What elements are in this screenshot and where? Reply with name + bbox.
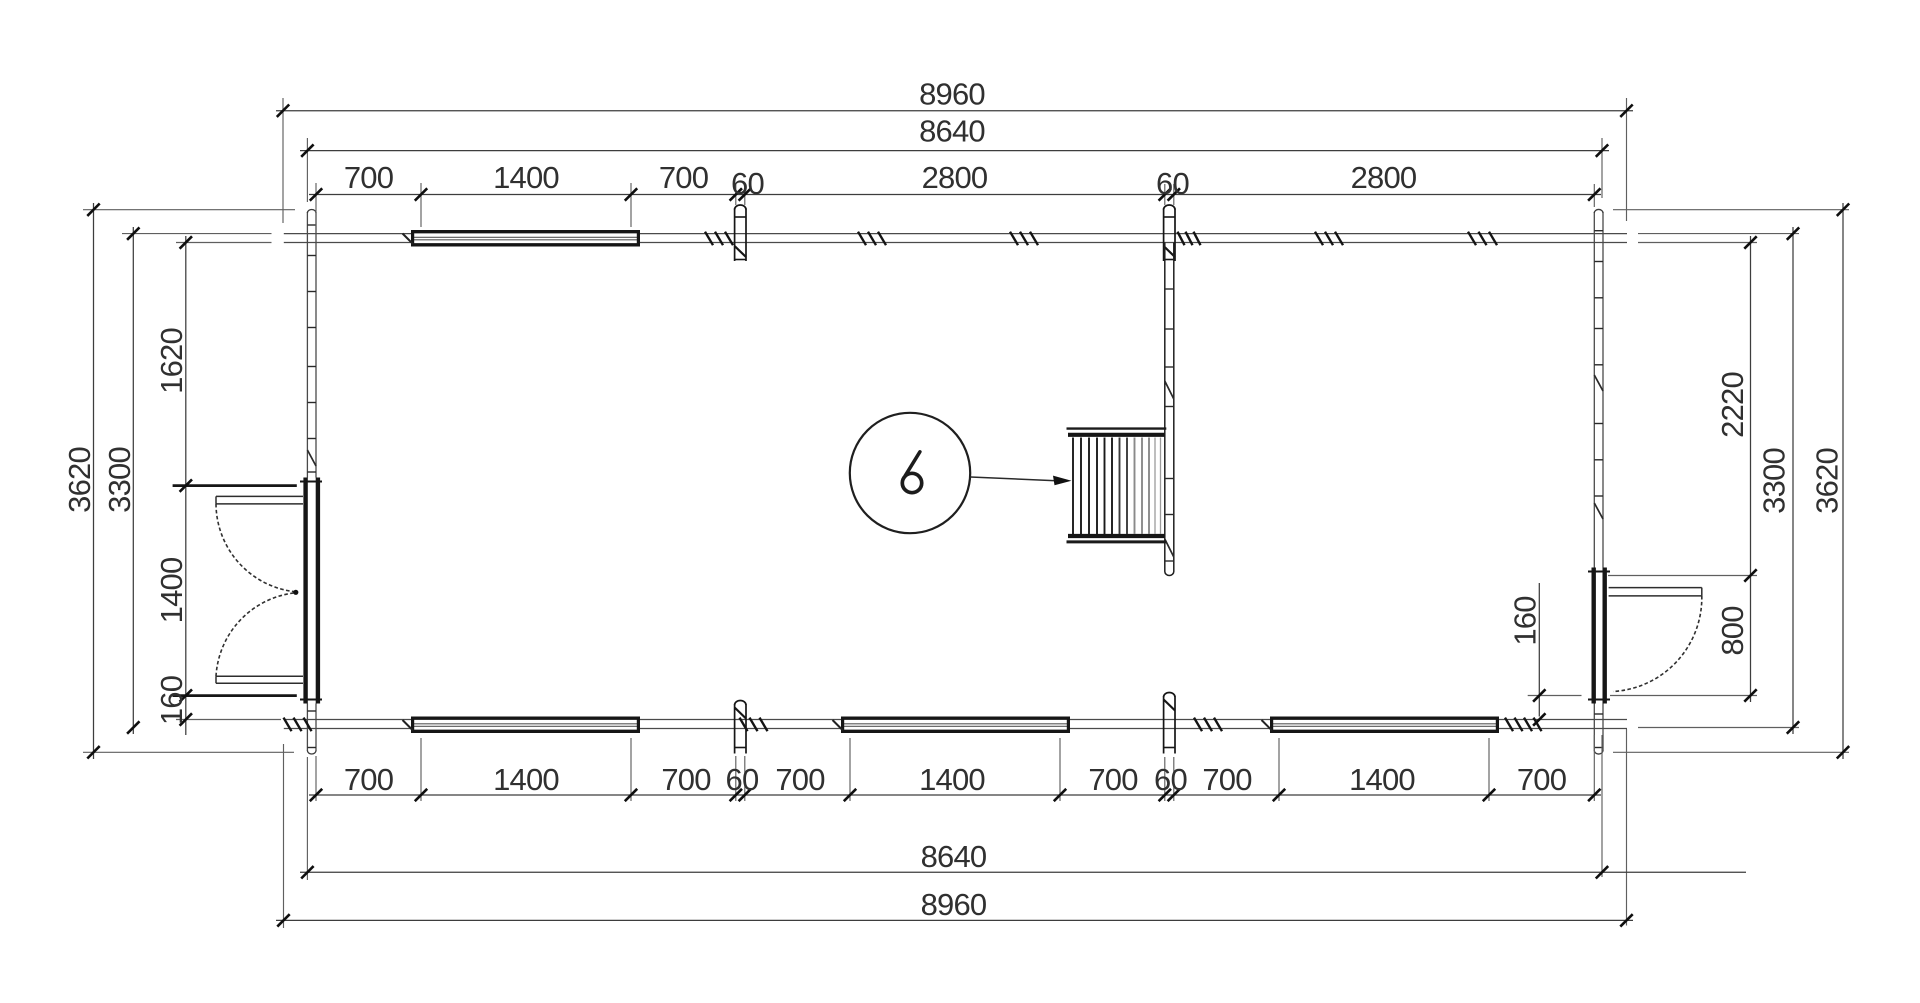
svg-text:8960: 8960 [921, 887, 987, 922]
svg-text:1400: 1400 [493, 160, 559, 195]
svg-text:1400: 1400 [919, 762, 985, 797]
svg-text:2800: 2800 [922, 160, 988, 195]
svg-text:3300: 3300 [1757, 448, 1792, 514]
svg-text:700: 700 [344, 762, 394, 797]
svg-text:8960: 8960 [919, 77, 985, 112]
svg-text:700: 700 [775, 762, 825, 797]
svg-text:60: 60 [726, 762, 759, 797]
svg-text:2800: 2800 [1351, 160, 1417, 195]
svg-text:700: 700 [659, 160, 709, 195]
svg-text:1400: 1400 [154, 557, 189, 623]
svg-text:3620: 3620 [62, 447, 97, 513]
svg-text:60: 60 [731, 166, 764, 201]
svg-text:1400: 1400 [1349, 762, 1415, 797]
svg-text:160: 160 [1508, 596, 1543, 646]
svg-text:2220: 2220 [1715, 372, 1750, 438]
svg-text:800: 800 [1715, 606, 1750, 656]
svg-text:8640: 8640 [921, 839, 987, 874]
svg-text:8640: 8640 [919, 114, 985, 149]
svg-text:3300: 3300 [102, 447, 137, 513]
svg-text:700: 700 [1517, 762, 1567, 797]
svg-text:700: 700 [344, 160, 394, 195]
svg-text:60: 60 [1156, 166, 1189, 201]
svg-text:700: 700 [1202, 762, 1252, 797]
svg-text:3620: 3620 [1810, 448, 1845, 514]
svg-text:700: 700 [661, 762, 711, 797]
svg-text:1400: 1400 [493, 762, 559, 797]
svg-text:700: 700 [1088, 762, 1138, 797]
svg-text:1620: 1620 [154, 328, 189, 394]
svg-text:60: 60 [1154, 762, 1187, 797]
svg-text:160: 160 [154, 675, 189, 725]
